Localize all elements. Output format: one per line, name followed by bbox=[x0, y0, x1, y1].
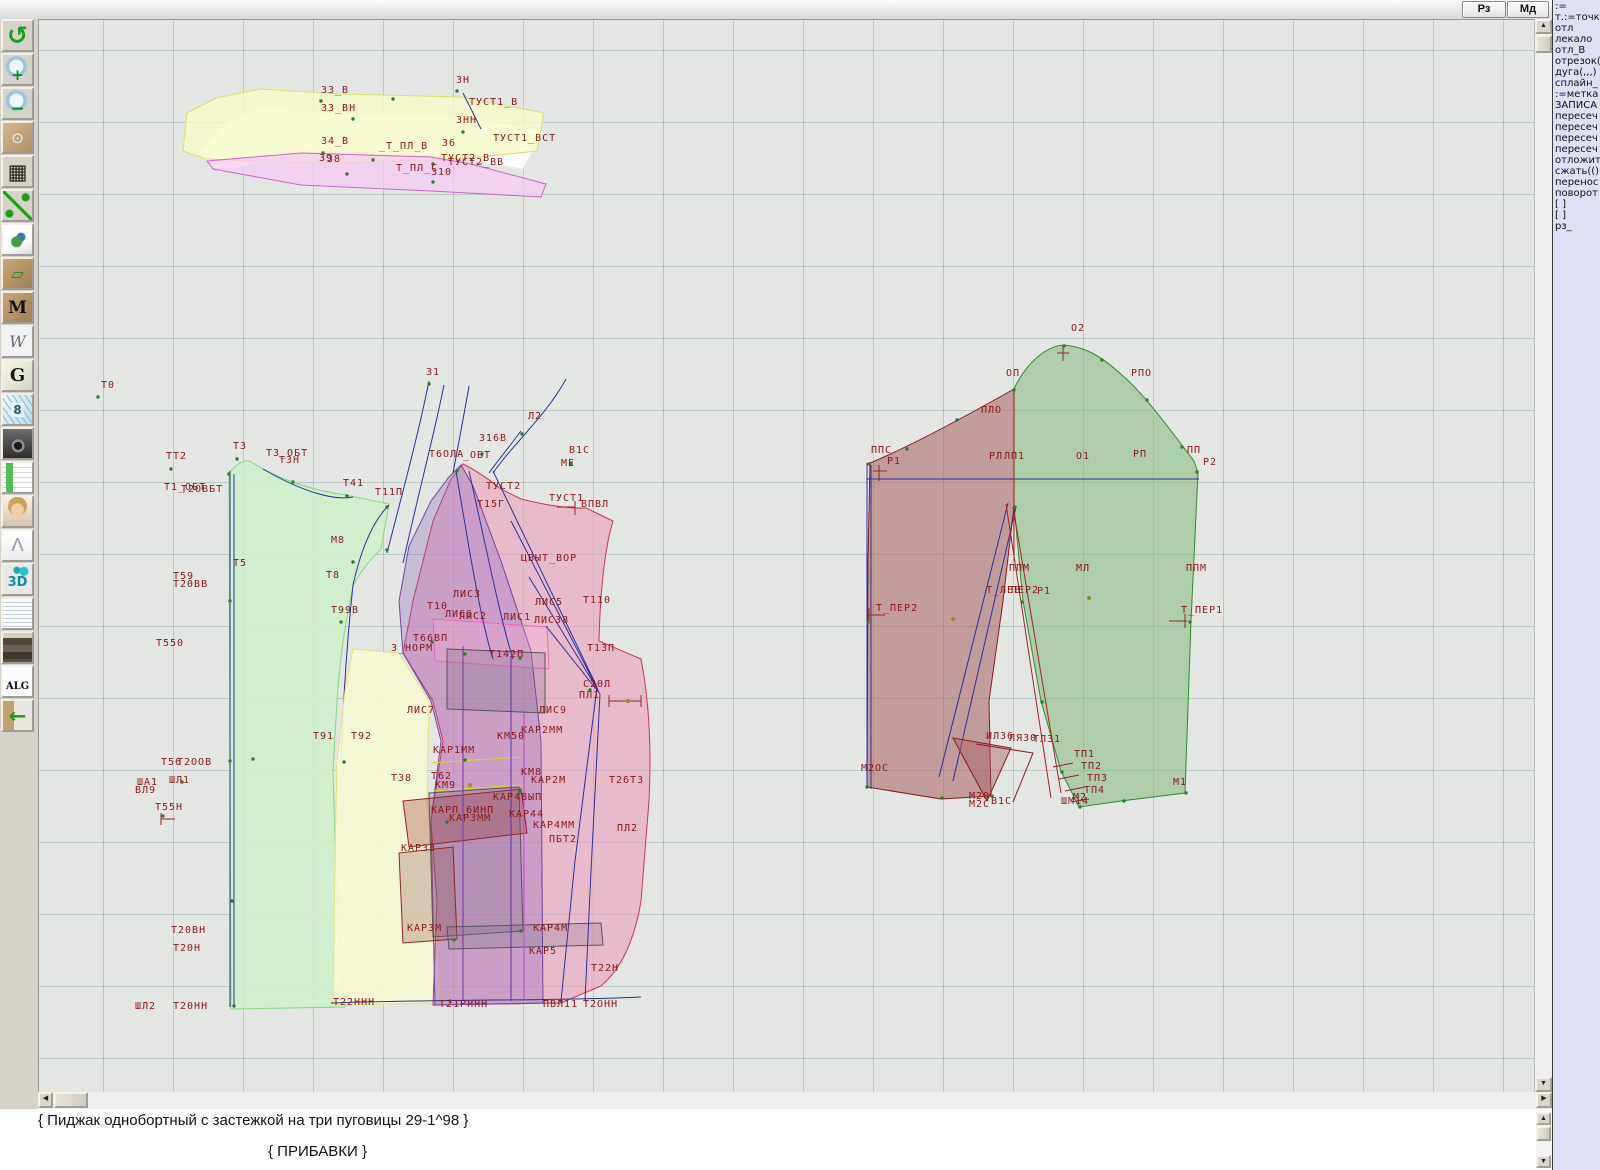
pattern-label: З10 bbox=[431, 168, 452, 178]
command-line: пересеч bbox=[1555, 122, 1600, 133]
toolbar-image-button[interactable] bbox=[1, 223, 34, 256]
pattern-label: ППМ bbox=[1186, 564, 1207, 574]
pattern-label: РЛ bbox=[989, 452, 1003, 462]
top-bar: Рз Мд bbox=[0, 0, 1600, 20]
toolbar-alg-button[interactable]: ALG bbox=[1, 665, 34, 698]
status-panel: { Пиджак однобортный с застежкой на три … bbox=[0, 1109, 1552, 1170]
pattern-label: МЕ bbox=[561, 459, 575, 469]
pattern-label: РП bbox=[1133, 450, 1147, 460]
pattern-label: ШЛ1 bbox=[169, 776, 190, 786]
grid-icon: ▦ bbox=[8, 160, 28, 184]
command-line: рз_ bbox=[1555, 221, 1600, 232]
pattern-label: ТУСТ1 bbox=[549, 494, 584, 504]
pattern-label: Т2ОВБТ bbox=[181, 485, 223, 495]
text-scroll-up-button[interactable]: ▲ bbox=[1536, 1112, 1551, 1125]
pattern-label: ШМ14 bbox=[1061, 797, 1089, 807]
text-scroll-thumb[interactable] bbox=[1536, 1126, 1551, 1141]
pattern-label: З3_ВН bbox=[321, 104, 356, 114]
pattern-label: ТП4 bbox=[1084, 786, 1105, 796]
toolbar-portrait-button[interactable] bbox=[1, 495, 34, 528]
command-line: лекало bbox=[1555, 34, 1600, 45]
pattern-label: КМ9 bbox=[435, 781, 456, 791]
pattern-label: М8 bbox=[331, 536, 345, 546]
pattern-label: Т0 bbox=[101, 381, 115, 391]
pattern-label: ЗН bbox=[456, 76, 470, 86]
pattern-label: Т11П bbox=[375, 488, 403, 498]
pattern-m-icon: M bbox=[8, 298, 27, 318]
pattern-label: КАР1ММ bbox=[433, 746, 475, 756]
pattern-label: О1 bbox=[1076, 452, 1090, 462]
toolbar-3d-button[interactable]: 3D bbox=[1, 563, 34, 596]
command-line: перенос bbox=[1555, 177, 1600, 188]
pattern-label: ППМ bbox=[1009, 564, 1030, 574]
toolbar-compass-button[interactable]: W bbox=[1, 325, 34, 358]
pattern-label: ЛИС2 bbox=[459, 612, 487, 622]
toolbar-zoom-in-button[interactable]: + bbox=[1, 53, 34, 86]
command-line: дуга(,,,) bbox=[1555, 67, 1600, 78]
pattern-label: МЛ bbox=[1076, 564, 1090, 574]
pattern-label: Т3 bbox=[233, 442, 247, 452]
pattern-label: _ОБТ bbox=[463, 451, 491, 461]
pattern-label: З3_В bbox=[321, 86, 349, 96]
command-line: поворот bbox=[1555, 188, 1600, 199]
pattern-label: Т21РННН bbox=[439, 1000, 488, 1010]
command-line: ЗАПИСА bbox=[1555, 100, 1600, 111]
command-line: т.:=точка bbox=[1555, 12, 1600, 23]
pattern-label: В1С bbox=[991, 797, 1012, 807]
pattern-label: Т110 bbox=[583, 596, 611, 606]
pattern-label: КАР3ММ bbox=[449, 814, 491, 824]
pattern-label: _Т_ПЛ_В bbox=[379, 142, 428, 152]
pattern-label: ЛИС3 bbox=[453, 590, 481, 600]
pattern-label: РПО bbox=[1131, 369, 1152, 379]
pattern-label: ТП3 bbox=[1087, 774, 1108, 784]
pattern-label: Т15Г bbox=[477, 500, 505, 510]
pattern-label: Т55Н bbox=[155, 803, 183, 813]
pattern-label: ТП1 bbox=[1074, 750, 1095, 760]
pattern-label: ТТ2 bbox=[166, 452, 187, 462]
toolbar-refresh-button[interactable]: ↺ bbox=[1, 19, 34, 52]
pattern-label: Т20НН bbox=[173, 1002, 208, 1012]
pattern-label: ЛИС1 bbox=[503, 613, 531, 623]
command-line: сжать(() bbox=[1555, 166, 1600, 177]
pattern-label: Т550 bbox=[156, 639, 184, 649]
toolbar-preview-button[interactable]: ⊙ bbox=[1, 121, 34, 154]
pattern-label: ТУСТ2 bbox=[486, 482, 521, 492]
pattern-label: ПЛ1 bbox=[579, 691, 600, 701]
pattern-label: Т41 bbox=[343, 479, 364, 489]
pattern-label: Т20ВВ bbox=[173, 580, 208, 590]
preview-icon: ⊙ bbox=[11, 129, 24, 147]
pattern-label: Т99В bbox=[331, 606, 359, 616]
jacket-icon: Λ bbox=[11, 535, 23, 556]
pattern-label: КАР33 bbox=[401, 844, 436, 854]
pattern-label: КАР3М bbox=[407, 924, 442, 934]
pattern-label: Т8 bbox=[326, 571, 340, 581]
pattern-label: Т38 bbox=[391, 774, 412, 784]
pattern-label: З16В bbox=[479, 434, 507, 444]
3d-icon: 3D bbox=[8, 575, 28, 590]
pattern-label: Т_ПЕР2 bbox=[876, 604, 918, 614]
pattern-label: ЛП1 bbox=[1004, 452, 1025, 462]
compass-icon: W bbox=[9, 332, 25, 351]
scroll-left-button[interactable]: ◀ bbox=[38, 1092, 53, 1108]
pattern-label: КМ50 bbox=[497, 732, 525, 742]
command-line: :=метка bbox=[1555, 89, 1600, 100]
toolbar-grid-button[interactable]: ▦ bbox=[1, 155, 34, 188]
horizontal-scrollbar[interactable]: ◀ ▶ bbox=[38, 1092, 1552, 1109]
toolbar-pattern-button[interactable]: ▱ bbox=[1, 257, 34, 290]
pattern-label: Т22Н bbox=[591, 964, 619, 974]
command-panel[interactable]: :=т.:=точкаотллекалоотл_Вотрезок(дуга(,,… bbox=[1552, 0, 1600, 1170]
rz-button[interactable]: Рз bbox=[1462, 1, 1506, 18]
model-description: { Пиджак однобортный с застежкой на три … bbox=[38, 1112, 468, 1129]
pattern-label: ТЛ31 bbox=[1033, 735, 1061, 745]
pattern-label: ППС bbox=[871, 446, 892, 456]
g-icon: G bbox=[10, 365, 25, 386]
pattern-icon: ▱ bbox=[11, 264, 23, 283]
app-window: { "topbar": { "buttons": [ { "label": "Р… bbox=[0, 0, 1600, 1170]
pattern-label: ЦВЫТ_ВОР bbox=[521, 554, 577, 564]
pattern-label: КАР4М bbox=[533, 924, 568, 934]
pattern-label: В1С bbox=[569, 446, 590, 456]
toolbar-books-button[interactable] bbox=[1, 631, 34, 664]
command-line: [ ] bbox=[1555, 210, 1600, 221]
toolbar-camera-button[interactable] bbox=[1, 427, 34, 460]
pattern-label: ЛИС7 bbox=[407, 706, 435, 716]
pattern-label: Т2ОНН bbox=[583, 1000, 618, 1010]
command-line: пересеч bbox=[1555, 111, 1600, 122]
canvas-labels: З3_ВЗ3_ВНЗНТУСТ1_ВЗННЗ4_В_Т_ПЛ_ВЗ6ТУСТ1_… bbox=[39, 20, 1534, 1092]
scroll-right-button[interactable]: ▶ bbox=[1536, 1092, 1552, 1108]
pattern-label: С20Л bbox=[583, 680, 611, 690]
command-line: [ ] bbox=[1555, 199, 1600, 210]
pattern-label: ТУСТ1_ВСТ bbox=[493, 134, 556, 144]
pattern-label: М1 bbox=[1173, 778, 1187, 788]
pattern-label: Т22ННН bbox=[333, 998, 375, 1008]
alg-icon: ALG bbox=[6, 681, 29, 692]
pattern-label: ВЛ9 bbox=[135, 786, 156, 796]
toolbar-exit-button[interactable]: ← bbox=[1, 699, 34, 732]
command-line: сплайн_ bbox=[1555, 78, 1600, 89]
pattern-label: З8 bbox=[327, 155, 341, 165]
pattern-label: ПЛО bbox=[981, 406, 1002, 416]
pattern-label: ТУСТ1_В bbox=[469, 98, 518, 108]
pattern-label: ПВЛ11 bbox=[543, 1000, 578, 1010]
pattern-label: М2С bbox=[969, 800, 990, 810]
pattern-label: ЗНН bbox=[456, 116, 477, 126]
command-line: отложит bbox=[1555, 155, 1600, 166]
toolbar-zoom-out-button[interactable]: − bbox=[1, 87, 34, 120]
toolbar-jacket-button[interactable]: Λ bbox=[1, 529, 34, 562]
pattern-label: КАР4ВЫП bbox=[493, 793, 542, 803]
text-scrollbar[interactable]: ▲ ▼ bbox=[1536, 1112, 1552, 1168]
pattern-label: ЛИС9 bbox=[539, 706, 567, 716]
command-line: отрезок( bbox=[1555, 56, 1600, 67]
zoom-out-icon: − bbox=[10, 99, 24, 119]
pattern-label: Т13П bbox=[587, 644, 615, 654]
command-line: := bbox=[1555, 1, 1600, 12]
scroll-down-button[interactable]: ▼ bbox=[1535, 1077, 1552, 1092]
pattern-label: ОП bbox=[1006, 369, 1020, 379]
pattern-label: Т142П bbox=[489, 650, 524, 660]
pattern-label: ПП bbox=[1187, 446, 1201, 456]
pattern-label: КАР5 bbox=[529, 947, 557, 957]
pattern-label: ПБТ2 bbox=[549, 835, 577, 845]
pattern-label: Р1 bbox=[887, 457, 901, 467]
toolbar-ruler-button[interactable]: 8 bbox=[1, 393, 34, 426]
pattern-label: Т92 bbox=[351, 732, 372, 742]
pattern-label: Т26Т3 bbox=[609, 776, 644, 786]
toolbar: ↺+−⊙▦▱MWG8Λ3DALG← bbox=[0, 19, 38, 1170]
pattern-label: ТЗН bbox=[279, 456, 300, 466]
ruler-icon: 8 bbox=[11, 403, 23, 417]
command-line: пересеч bbox=[1555, 133, 1600, 144]
toolbar-textdoc-button[interactable] bbox=[1, 597, 34, 630]
toolbar-measure-button[interactable] bbox=[1, 189, 34, 222]
pattern-label: Т20Н bbox=[173, 944, 201, 954]
pattern-label: ТП2 bbox=[1081, 762, 1102, 772]
pattern-label: Л2 bbox=[528, 412, 542, 422]
pattern-label: КАР2М bbox=[531, 776, 566, 786]
toolbar-table-button[interactable] bbox=[1, 461, 34, 494]
pattern-label: ПЕР2 bbox=[1011, 586, 1039, 596]
pattern-label: Т20ВН bbox=[171, 926, 206, 936]
md-button[interactable]: Мд bbox=[1507, 1, 1549, 18]
pattern-label: Т5 bbox=[233, 559, 247, 569]
pattern-label: Т2ООВ bbox=[177, 758, 212, 768]
pattern-label: ЛИС38 bbox=[534, 616, 569, 626]
vertical-scrollbar[interactable]: ▲ ▼ bbox=[1534, 19, 1553, 1092]
command-line: пересеч bbox=[1555, 144, 1600, 155]
text-scroll-down-button[interactable]: ▼ bbox=[1536, 1155, 1551, 1168]
pattern-label: ПЛ2 bbox=[617, 824, 638, 834]
pattern-label: М2ОС bbox=[861, 764, 889, 774]
pattern-label: ШЛ2 bbox=[135, 1002, 156, 1012]
pattern-label: ВПВЛ bbox=[581, 500, 609, 510]
pattern-label: Р1 bbox=[1037, 587, 1051, 597]
drawing-canvas[interactable]: З3_ВЗ3_ВНЗНТУСТ1_ВЗННЗ4_В_Т_ПЛ_ВЗ6ТУСТ1_… bbox=[38, 19, 1534, 1092]
pattern-label: О2 bbox=[1071, 324, 1085, 334]
pattern-label: КАР44 bbox=[509, 810, 544, 820]
command-line: отл bbox=[1555, 23, 1600, 34]
refresh-icon: ↺ bbox=[7, 21, 28, 50]
pattern-label: КАР2ММ bbox=[521, 726, 563, 736]
pattern-label: З4_В bbox=[321, 137, 349, 147]
scroll-up-button[interactable]: ▲ bbox=[1535, 19, 1552, 34]
toolbar-pattern-m-button[interactable]: M bbox=[1, 291, 34, 324]
pattern-label: ТУСТ2_ВВ bbox=[448, 158, 504, 168]
section-title: { ПРИБАВКИ } bbox=[268, 1143, 367, 1160]
exit-icon: ← bbox=[9, 704, 27, 728]
pattern-label: Т_ПЕР1 bbox=[1181, 606, 1223, 616]
zoom-in-icon: + bbox=[11, 66, 24, 84]
pattern-label: КАР4ММ bbox=[533, 821, 575, 831]
pattern-label: З6 bbox=[442, 139, 456, 149]
pattern-label: Т6ОЛА bbox=[429, 450, 464, 460]
command-line: отл_В bbox=[1555, 45, 1600, 56]
horizontal-scroll-thumb[interactable] bbox=[54, 1092, 88, 1108]
pattern-label: Р2 bbox=[1203, 458, 1217, 468]
toolbar-g-button[interactable]: G bbox=[1, 359, 34, 392]
pattern-label: З1 bbox=[426, 368, 440, 378]
pattern-label: Т91 bbox=[313, 732, 334, 742]
pattern-label: З_НОРМ bbox=[391, 644, 433, 654]
vertical-scroll-thumb[interactable] bbox=[1535, 35, 1552, 53]
pattern-label: ЛИС5 bbox=[535, 598, 563, 608]
